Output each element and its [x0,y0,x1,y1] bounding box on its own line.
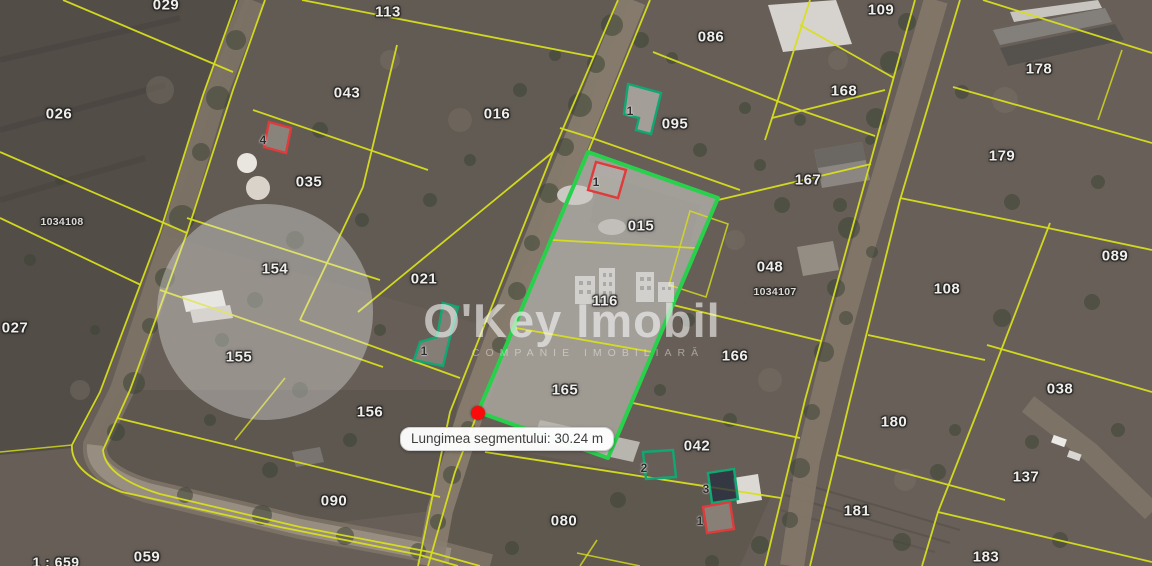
building-outline-red-1b [703,502,734,533]
watermark-title: O'Key Imobil [423,294,720,347]
measurement-marker[interactable] [471,406,485,420]
measurement-tooltip: Lungimea segmentului: 30.24 m [400,427,614,451]
satellite-map-svg: O'Key Imobil COMPANIE IMOBILIARĂ [0,0,1152,566]
building-outline-teal-3 [708,469,738,503]
map-canvas[interactable]: O'Key Imobil COMPANIE IMOBILIARĂ 0291130… [0,0,1152,566]
watermark-circle [157,204,373,420]
watermark-subtitle: COMPANIE IMOBILIARĂ [472,346,704,359]
building-outline-red-1 [588,162,626,198]
building-outline-red-4 [264,122,291,153]
